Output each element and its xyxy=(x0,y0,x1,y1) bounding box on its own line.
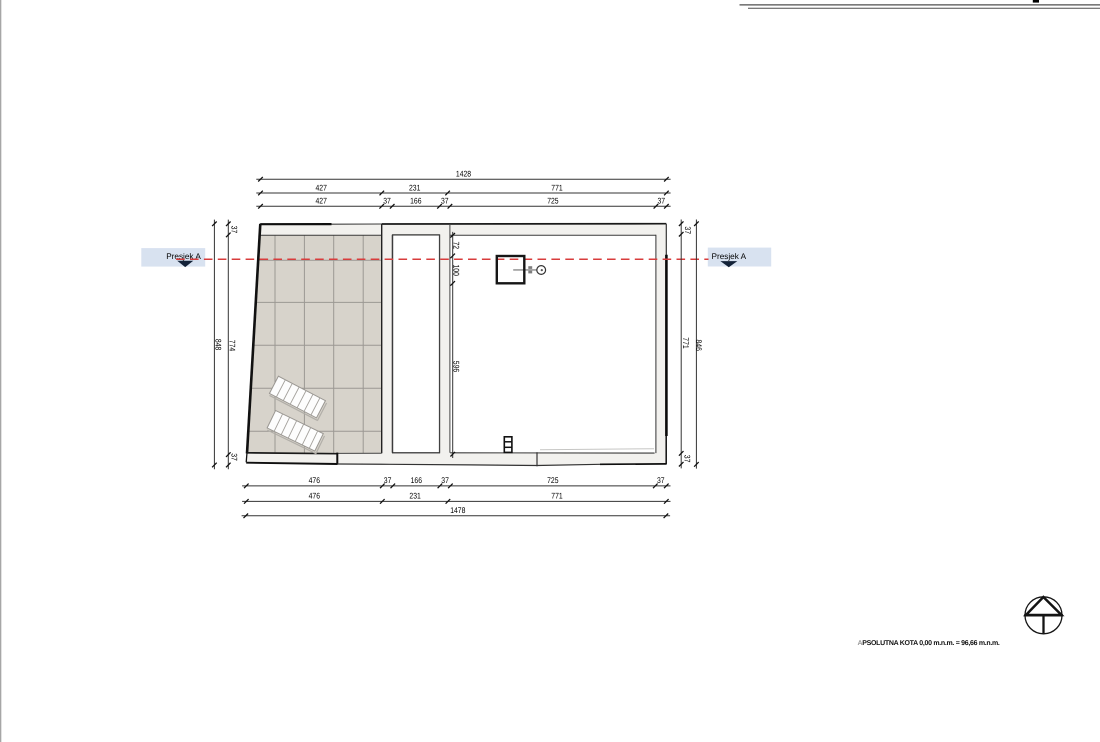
svg-text:166: 166 xyxy=(411,476,423,485)
svg-text:166: 166 xyxy=(410,197,422,206)
svg-text:774: 774 xyxy=(228,340,237,352)
svg-text:37: 37 xyxy=(441,476,449,485)
svg-text:846: 846 xyxy=(694,340,703,352)
svg-text:771: 771 xyxy=(551,492,563,501)
svg-text:231: 231 xyxy=(409,492,421,501)
svg-text:37: 37 xyxy=(441,197,449,206)
svg-text:725: 725 xyxy=(547,476,559,485)
svg-text:1428: 1428 xyxy=(456,169,472,178)
svg-text:37: 37 xyxy=(657,476,665,485)
svg-text:476: 476 xyxy=(309,492,321,501)
svg-text:37: 37 xyxy=(683,226,692,234)
svg-text:771: 771 xyxy=(551,183,563,192)
svg-text:37: 37 xyxy=(384,476,392,485)
svg-text:427: 427 xyxy=(316,183,328,192)
svg-text:476: 476 xyxy=(309,476,321,485)
svg-text:37: 37 xyxy=(658,197,666,206)
svg-text:596: 596 xyxy=(452,361,461,373)
svg-text:848: 848 xyxy=(214,339,223,351)
svg-text:1478: 1478 xyxy=(450,506,466,515)
svg-text:37: 37 xyxy=(230,453,239,461)
svg-text:771: 771 xyxy=(681,337,690,349)
svg-text:Presjek A: Presjek A xyxy=(712,252,747,261)
svg-text:APSOLUTNA KOTA 0,00 m.n.m. = 9: APSOLUTNA KOTA 0,00 m.n.m. = 96,66 m.n.m… xyxy=(858,640,1000,647)
svg-text:72: 72 xyxy=(452,242,461,250)
svg-text:37: 37 xyxy=(683,455,692,463)
svg-text:100: 100 xyxy=(452,265,461,277)
svg-text:427: 427 xyxy=(316,197,328,206)
svg-text:725: 725 xyxy=(547,197,559,206)
svg-text:37: 37 xyxy=(383,197,391,206)
svg-text:37: 37 xyxy=(230,226,239,234)
svg-text:231: 231 xyxy=(409,183,421,192)
